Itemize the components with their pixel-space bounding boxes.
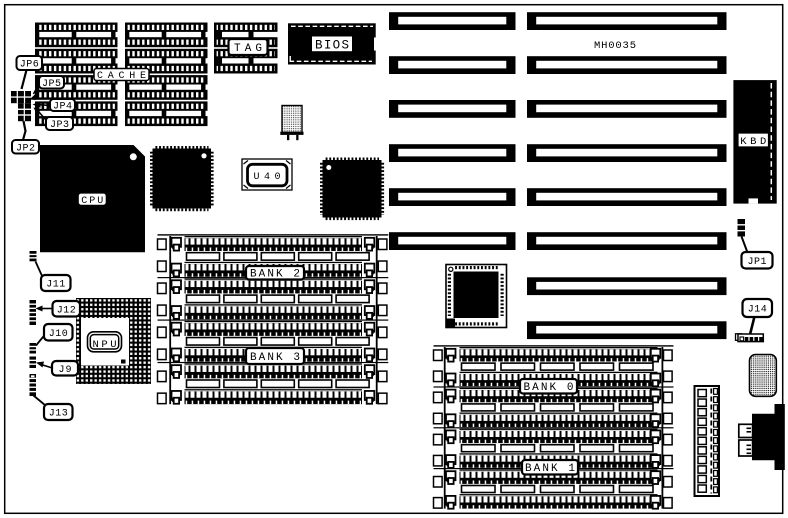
svg-text:JP5: JP5 [42,79,61,90]
svg-text:JP6: JP6 [20,60,39,71]
svg-text:JP3: JP3 [50,120,69,131]
svg-text:J14: J14 [748,305,767,316]
svg-text:J13: J13 [49,409,68,420]
svg-text:CPU: CPU [81,196,103,207]
svg-text:JP2: JP2 [16,143,35,154]
svg-text:JP1: JP1 [748,257,767,268]
svg-text:J12: J12 [57,305,76,316]
svg-text:MH0035: MH0035 [594,40,636,52]
svg-text:J9: J9 [59,365,72,376]
svg-text:U40: U40 [254,172,281,183]
svg-text:J11: J11 [46,280,65,291]
svg-text:TAG: TAG [234,43,262,55]
svg-text:KBD: KBD [740,136,766,148]
svg-text:JP4: JP4 [53,102,72,113]
svg-text:BIOS: BIOS [315,39,349,53]
svg-text:NPU: NPU [93,339,117,351]
svg-text:J10: J10 [49,329,68,340]
